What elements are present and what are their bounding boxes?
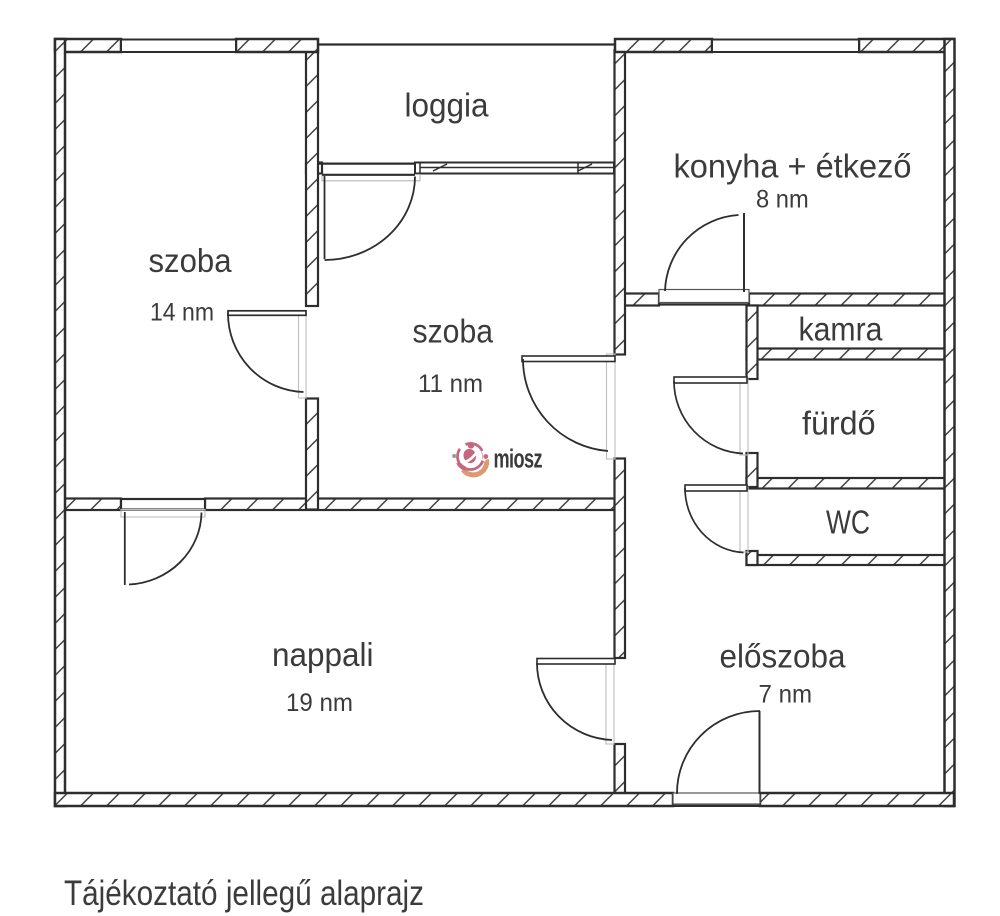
svg-text:8 nm: 8 nm [756,186,809,214]
svg-text:11 nm: 11 nm [418,370,483,398]
svg-text:konyha + étkező: konyha + étkező [674,148,912,185]
svg-text:14 nm: 14 nm [150,299,214,327]
svg-text:7 nm: 7 nm [759,681,813,709]
svg-text:WC: WC [826,504,870,541]
svg-text:előszoba: előszoba [720,638,847,675]
svg-text:miosz: miosz [494,446,543,474]
svg-text:loggia: loggia [405,86,490,123]
svg-text:19 nm: 19 nm [286,689,353,717]
svg-text:nappali: nappali [272,636,374,673]
svg-text:fürdő: fürdő [802,405,876,442]
svg-text:Tájékoztató jellegű alaprajz: Tájékoztató jellegű alaprajz [64,874,424,913]
svg-text:szoba: szoba [413,313,494,350]
svg-text:kamra: kamra [799,311,884,348]
svg-text:szoba: szoba [149,242,233,279]
